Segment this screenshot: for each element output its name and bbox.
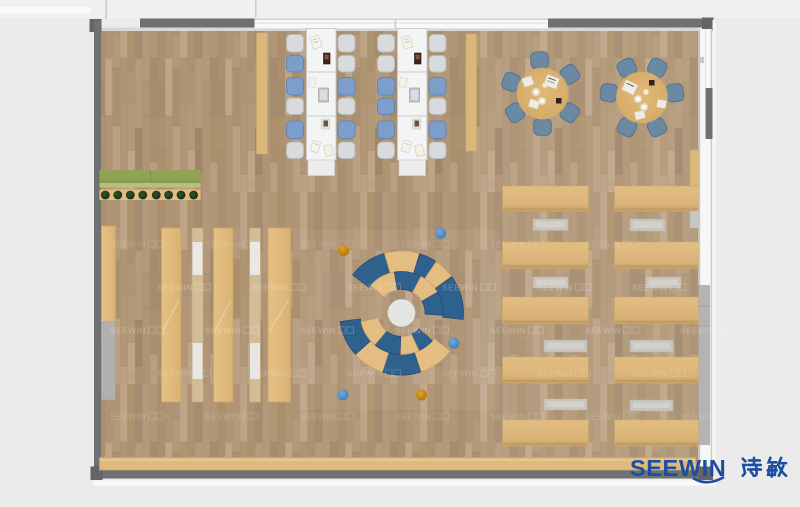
svg-text:SEEWIN: SEEWIN xyxy=(490,240,526,250)
svg-text:SEEWIN: SEEWIN xyxy=(585,326,621,336)
svg-text:SEEWIN: SEEWIN xyxy=(252,369,288,379)
svg-text:SEEWIN: SEEWIN xyxy=(395,412,431,422)
svg-text:SEEWIN: SEEWIN xyxy=(347,369,383,379)
svg-text:SEEWIN: SEEWIN xyxy=(110,412,146,422)
svg-text:SEEWIN: SEEWIN xyxy=(110,240,146,250)
svg-text:SEEWIN: SEEWIN xyxy=(157,283,193,293)
svg-text:SEEWIN: SEEWIN xyxy=(632,283,668,293)
svg-text:SEEWIN: SEEWIN xyxy=(300,326,336,336)
svg-text:SEEWIN: SEEWIN xyxy=(395,326,431,336)
svg-text:SEEWIN: SEEWIN xyxy=(680,240,716,250)
svg-text:SEEWIN: SEEWIN xyxy=(490,326,526,336)
svg-text:SEEWIN: SEEWIN xyxy=(205,326,241,336)
svg-text:SEEWIN: SEEWIN xyxy=(110,326,146,336)
svg-text:SEEWIN: SEEWIN xyxy=(537,283,573,293)
svg-text:SEEWIN: SEEWIN xyxy=(490,412,526,422)
svg-text:SEEWIN: SEEWIN xyxy=(300,240,336,250)
svg-text:SEEWIN: SEEWIN xyxy=(347,283,383,293)
svg-text:SEEWIN: SEEWIN xyxy=(630,455,726,481)
svg-text:SEEWIN: SEEWIN xyxy=(680,326,716,336)
svg-text:SEEWIN: SEEWIN xyxy=(585,412,621,422)
svg-text:SEEWIN: SEEWIN xyxy=(300,412,336,422)
svg-text:SEEWIN: SEEWIN xyxy=(632,369,668,379)
svg-text:SEEWIN: SEEWIN xyxy=(680,412,716,422)
svg-text:SEEWIN: SEEWIN xyxy=(585,240,621,250)
svg-text:SEEWIN: SEEWIN xyxy=(395,240,431,250)
svg-text:SEEWIN: SEEWIN xyxy=(252,283,288,293)
svg-text:SEEWIN: SEEWIN xyxy=(205,412,241,422)
svg-text:SEEWIN: SEEWIN xyxy=(205,240,241,250)
svg-text:SEEWIN: SEEWIN xyxy=(442,283,478,293)
svg-text:SEEWIN: SEEWIN xyxy=(537,369,573,379)
svg-text:SEEWIN: SEEWIN xyxy=(442,369,478,379)
svg-text:SEEWIN: SEEWIN xyxy=(157,369,193,379)
